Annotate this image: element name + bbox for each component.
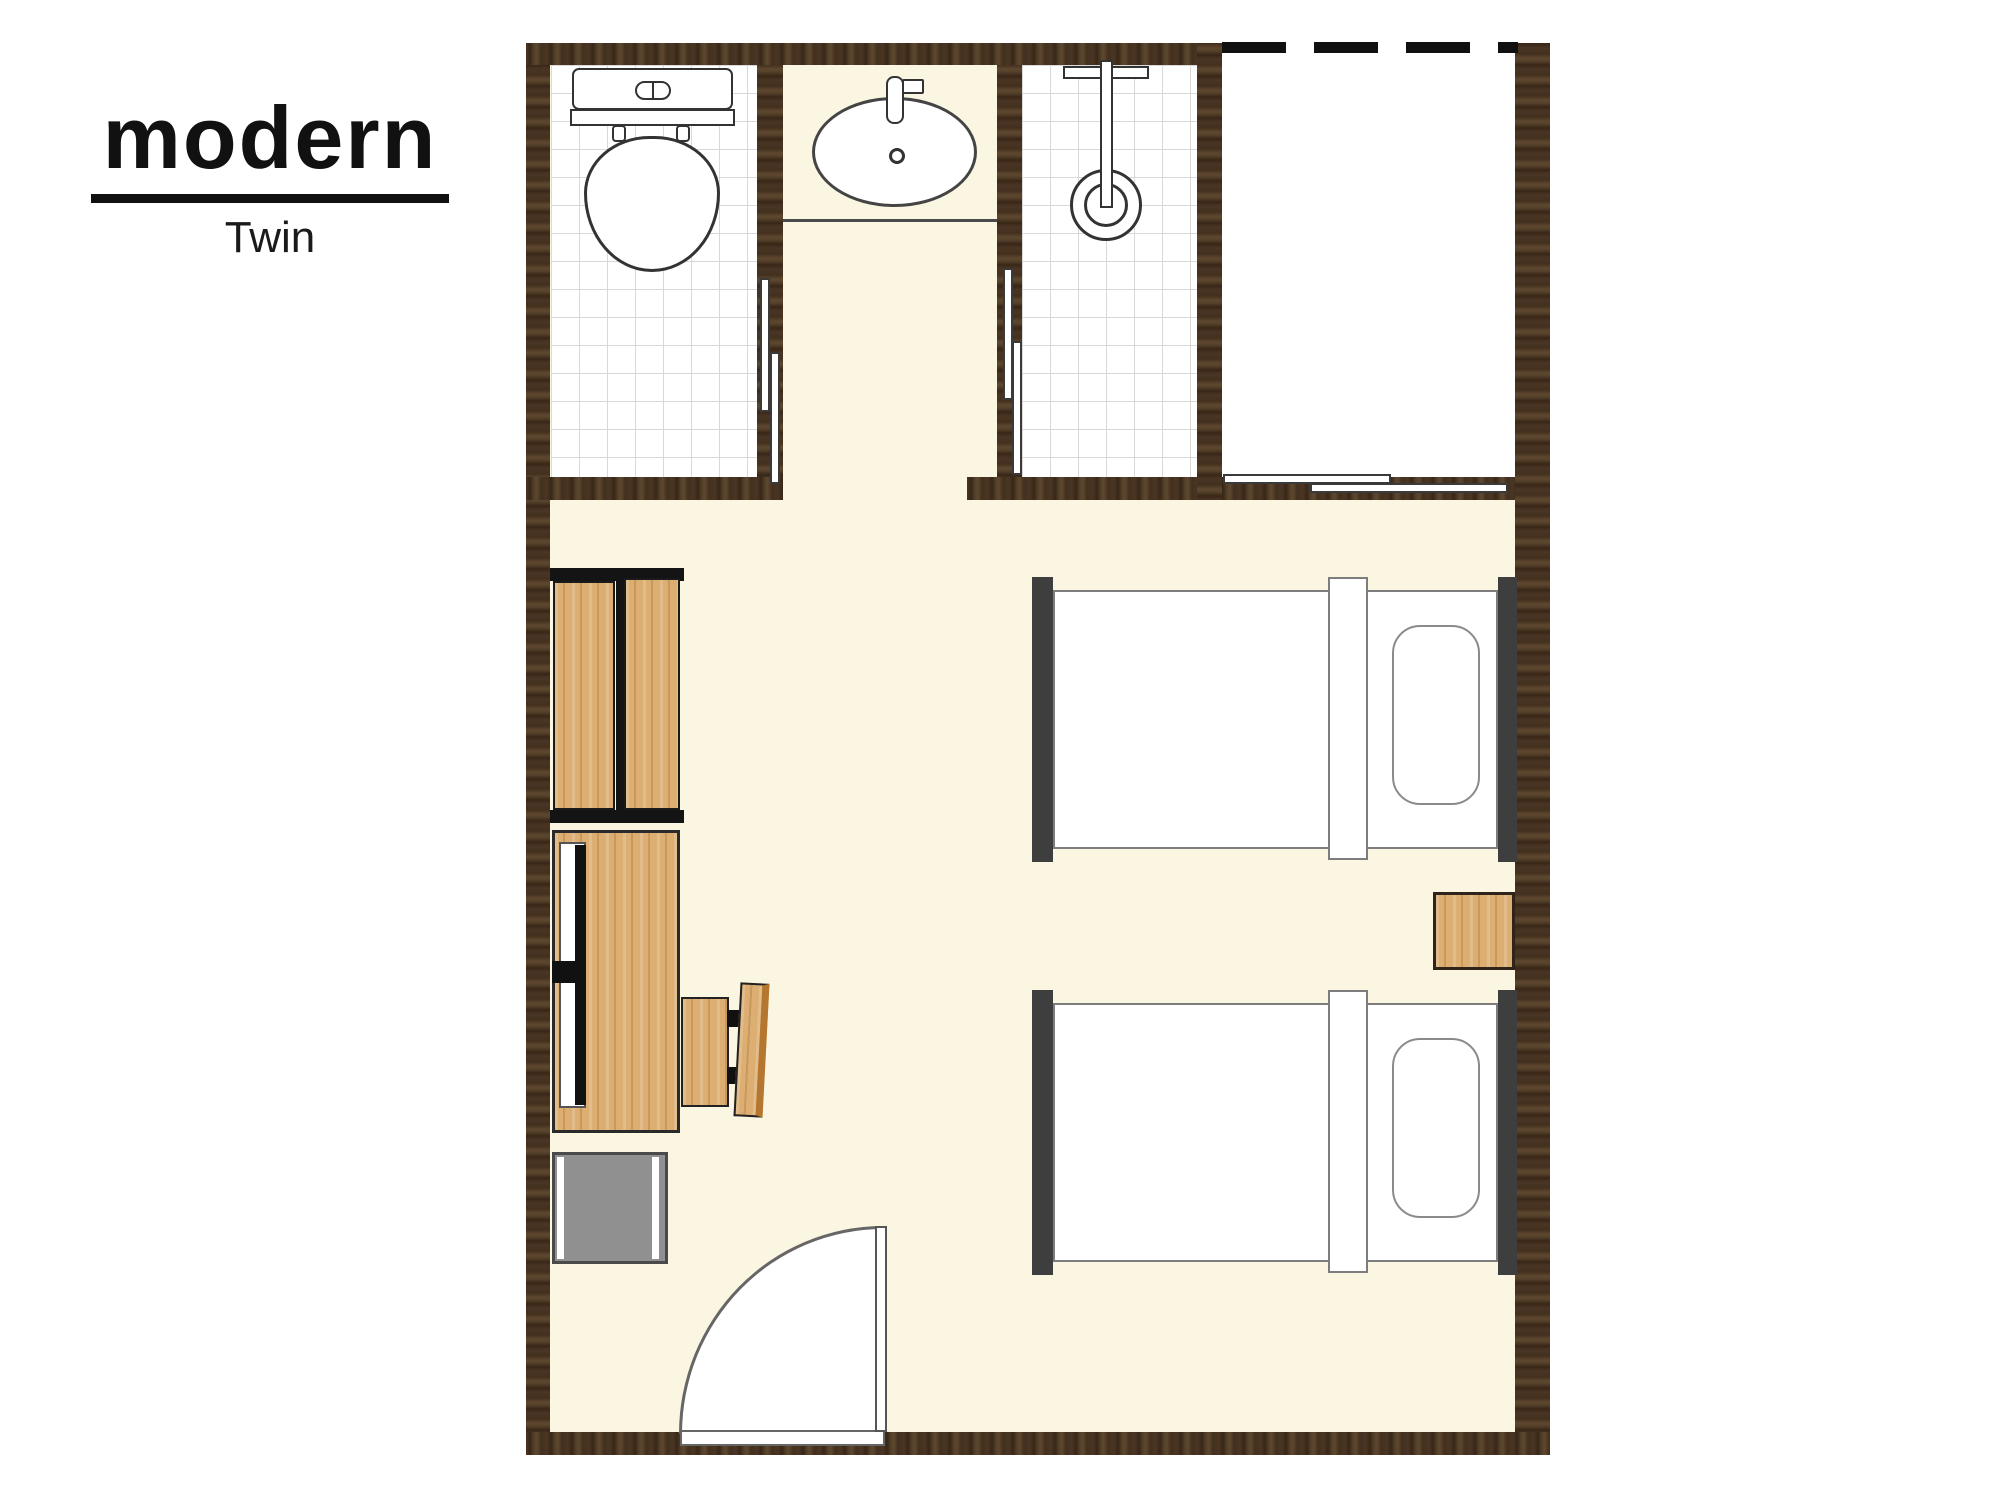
bed1-footboard xyxy=(1032,577,1053,862)
wall-left xyxy=(526,43,550,1455)
toilet-bowl xyxy=(584,136,720,272)
wardrobe-divider xyxy=(616,578,624,813)
wardrobe xyxy=(550,568,684,823)
door-threshold xyxy=(680,1430,885,1446)
closet-open-boundary-dashed-line xyxy=(1222,42,1518,53)
single-bed-2 xyxy=(1032,990,1517,1275)
toilet-tank-tray xyxy=(570,109,735,126)
single-bed-1 xyxy=(1032,577,1517,862)
chair-connector-top xyxy=(727,1010,739,1027)
wardrobe-door-left xyxy=(553,581,615,810)
bed1-blanket-fold xyxy=(1328,577,1368,860)
bed2-footboard xyxy=(1032,990,1053,1275)
shower xyxy=(1063,60,1153,250)
wall-toilet-bottom xyxy=(526,477,783,500)
tv-mount xyxy=(552,961,578,983)
bed1-headboard xyxy=(1498,577,1517,862)
chair-seat xyxy=(681,997,729,1107)
floor-plan xyxy=(0,0,2000,1500)
toilet xyxy=(570,65,735,280)
bed2-blanket-fold xyxy=(1328,990,1368,1273)
washbasin-drain xyxy=(889,148,905,164)
washbasin-counter-edge xyxy=(783,219,997,222)
chair xyxy=(681,983,773,1119)
shower-arm xyxy=(1100,60,1113,208)
bed2-pillow xyxy=(1392,1038,1480,1218)
mini-fridge xyxy=(552,1152,668,1264)
bed1-pillow xyxy=(1392,625,1480,805)
fridge-seam-left xyxy=(557,1157,564,1259)
faucet-spout xyxy=(902,79,924,94)
fridge-seam-right xyxy=(652,1157,659,1259)
bed2-headboard xyxy=(1498,990,1517,1275)
door-leaf xyxy=(875,1226,887,1432)
screenshot-root: { "title": "modern", "subtitle": "Twin",… xyxy=(0,0,2000,1500)
nightstand xyxy=(1433,892,1515,970)
closet-floor xyxy=(1222,53,1515,477)
toilet-flush-divider xyxy=(652,83,654,98)
washbasin xyxy=(812,76,977,208)
chair-backrest xyxy=(734,982,770,1117)
entrance-door xyxy=(660,1220,900,1460)
door-swing-arc xyxy=(679,1226,883,1434)
wardrobe-door-right xyxy=(624,578,680,810)
sliding-door-toilet xyxy=(760,278,770,412)
partition-closet-left xyxy=(1197,43,1222,500)
desk xyxy=(552,830,680,1133)
sliding-door-closet-panel2 xyxy=(1310,483,1508,493)
sliding-door-shower-panel2 xyxy=(1012,341,1022,475)
wall-right xyxy=(1515,43,1550,1455)
sliding-door-toilet-panel2 xyxy=(770,352,780,484)
